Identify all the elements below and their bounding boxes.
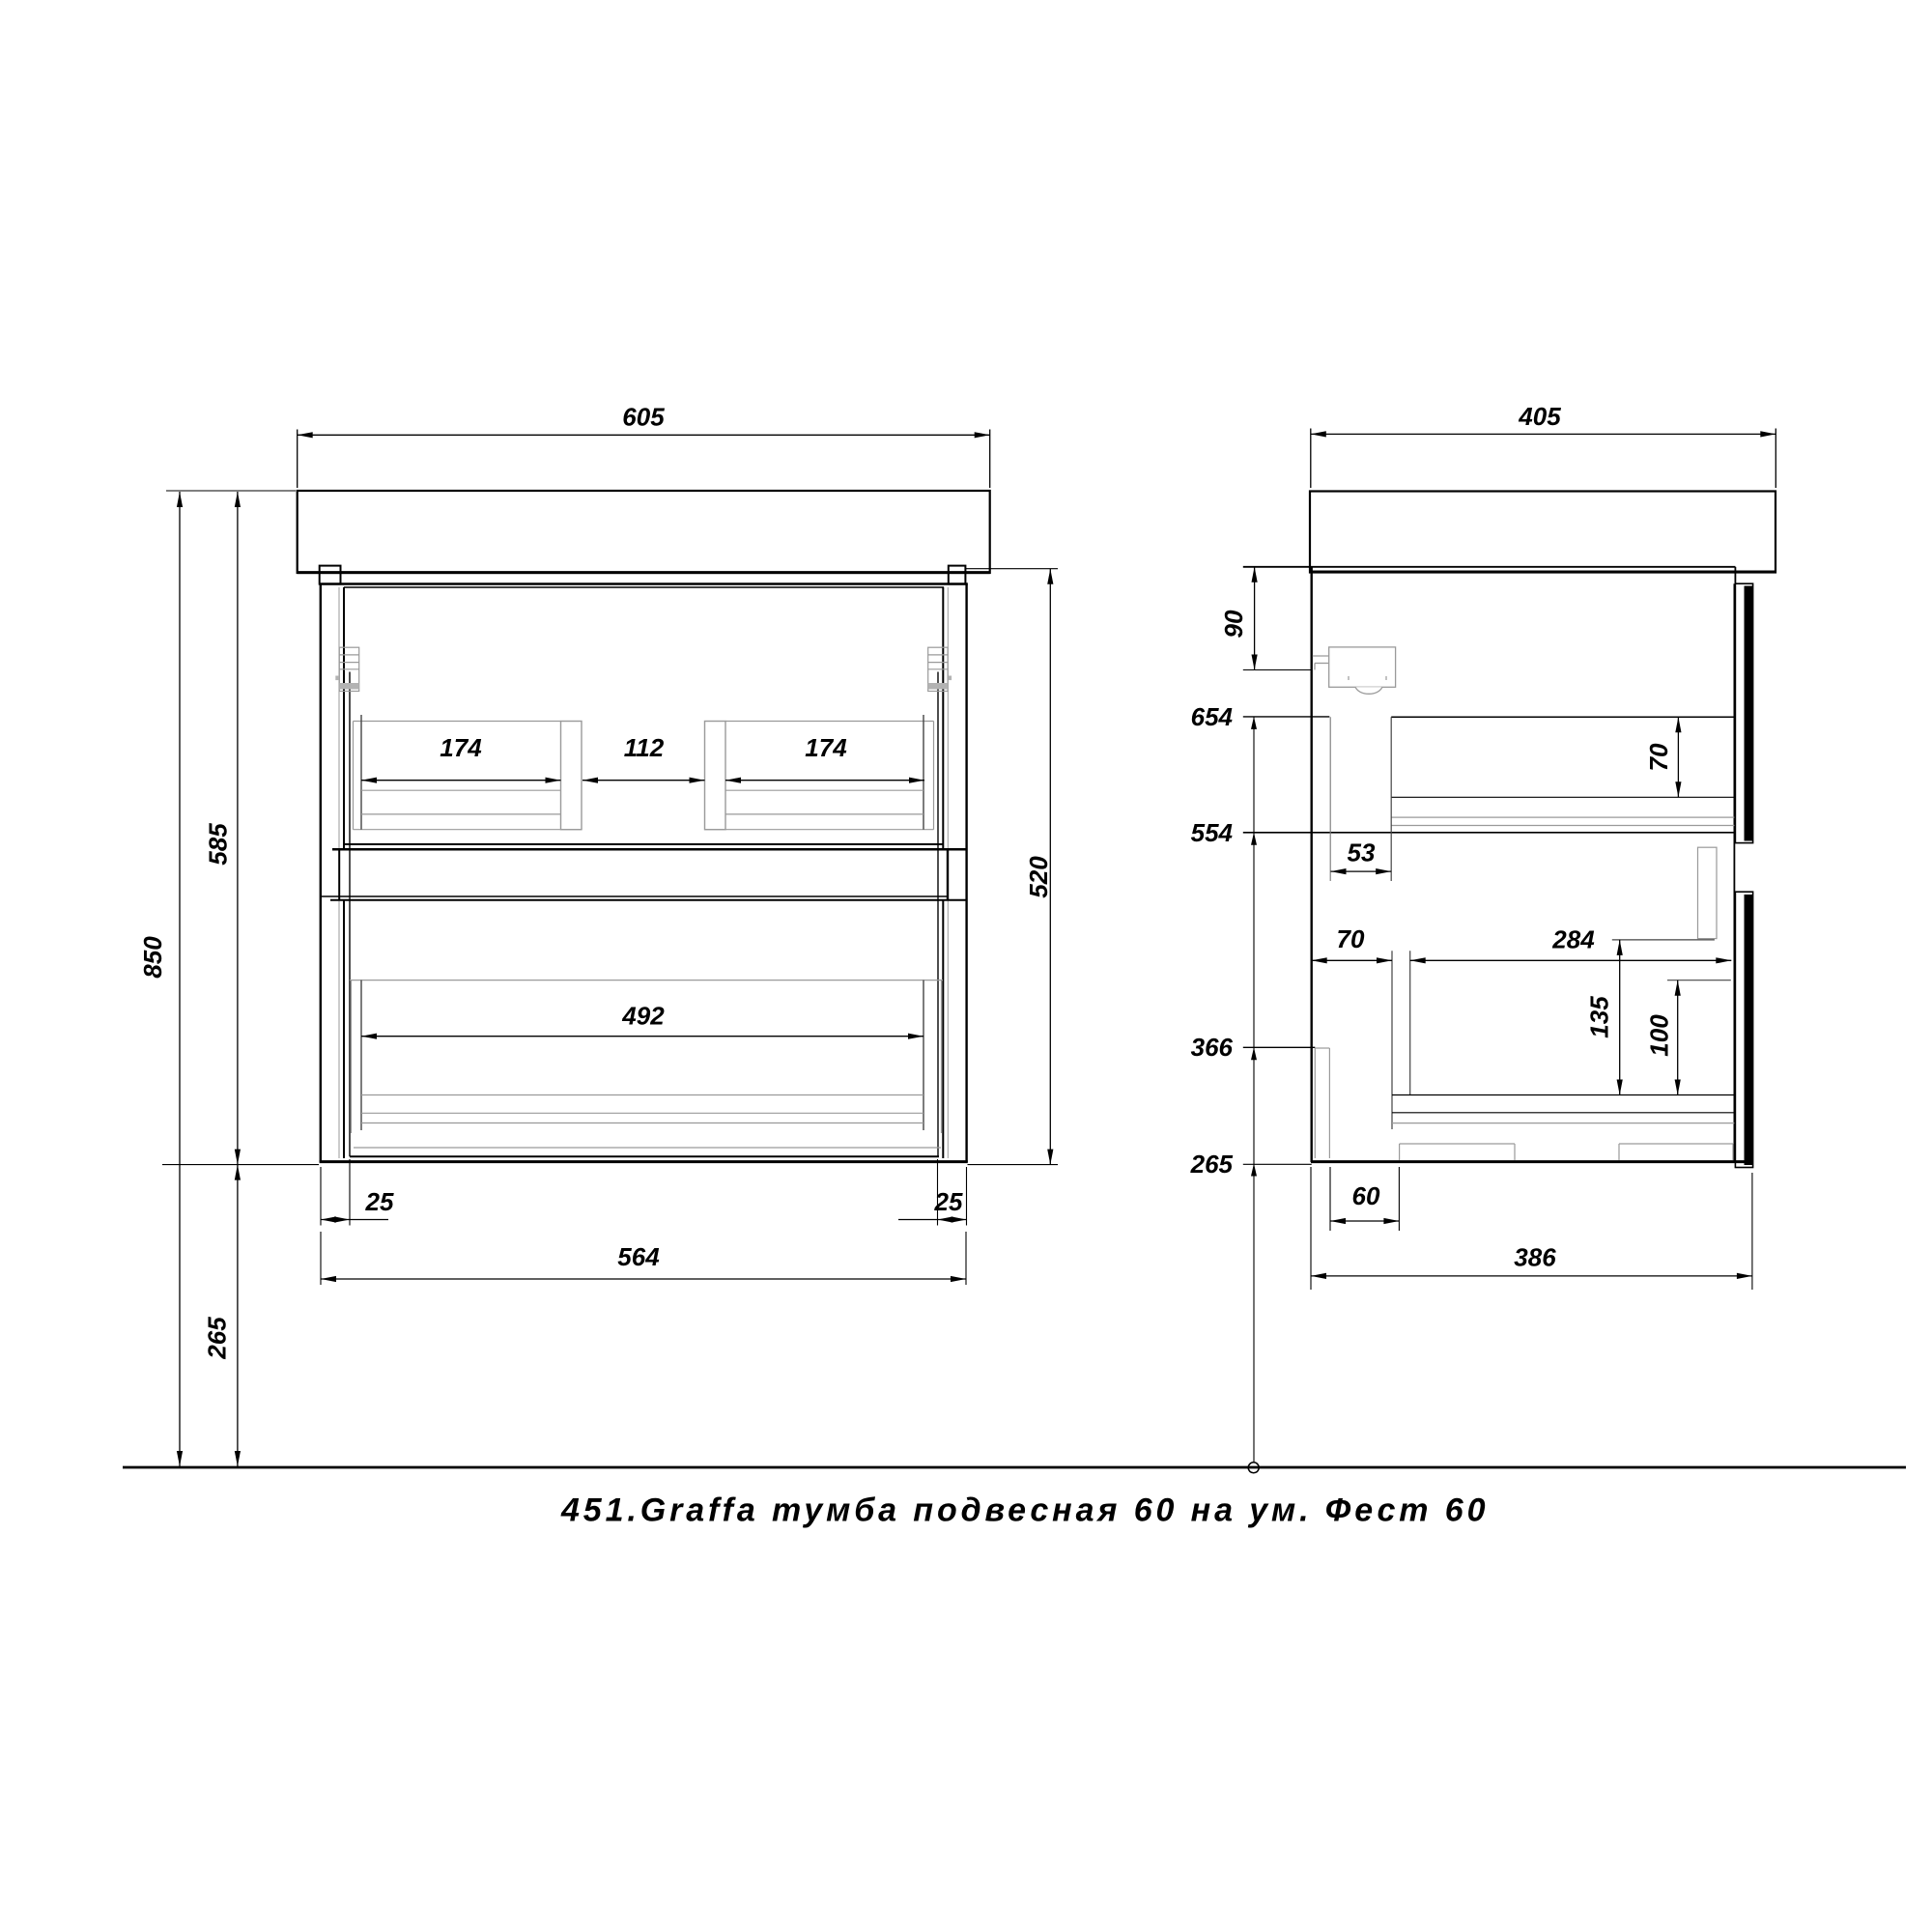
svg-text:284: 284 [1551,925,1595,954]
svg-text:100: 100 [1644,1014,1673,1057]
svg-text:492: 492 [621,1002,665,1031]
svg-text:265: 265 [1190,1150,1234,1179]
svg-text:60: 60 [1352,1181,1380,1210]
svg-text:585: 585 [203,823,232,866]
svg-text:451.Graffa тумба подвесная 60: 451.Graffa тумба подвесная 60 на ум. Фес… [560,1492,1489,1529]
svg-text:135: 135 [1584,996,1613,1038]
svg-text:25: 25 [365,1187,394,1216]
svg-text:70: 70 [1337,924,1365,953]
svg-text:174: 174 [805,733,847,762]
svg-text:554: 554 [1191,818,1234,847]
svg-text:112: 112 [624,733,665,762]
svg-text:654: 654 [1191,702,1234,731]
svg-text:53: 53 [1348,838,1376,867]
svg-text:386: 386 [1514,1243,1556,1272]
svg-text:70: 70 [1644,743,1673,771]
svg-text:25: 25 [934,1187,963,1216]
svg-text:90: 90 [1219,610,1248,638]
svg-text:405: 405 [1518,402,1561,431]
svg-text:174: 174 [440,733,482,762]
svg-text:564: 564 [617,1242,660,1271]
svg-text:605: 605 [622,403,665,432]
svg-text:265: 265 [202,1317,231,1360]
svg-text:850: 850 [138,936,167,979]
svg-text:520: 520 [1024,856,1053,898]
svg-text:366: 366 [1191,1033,1234,1062]
